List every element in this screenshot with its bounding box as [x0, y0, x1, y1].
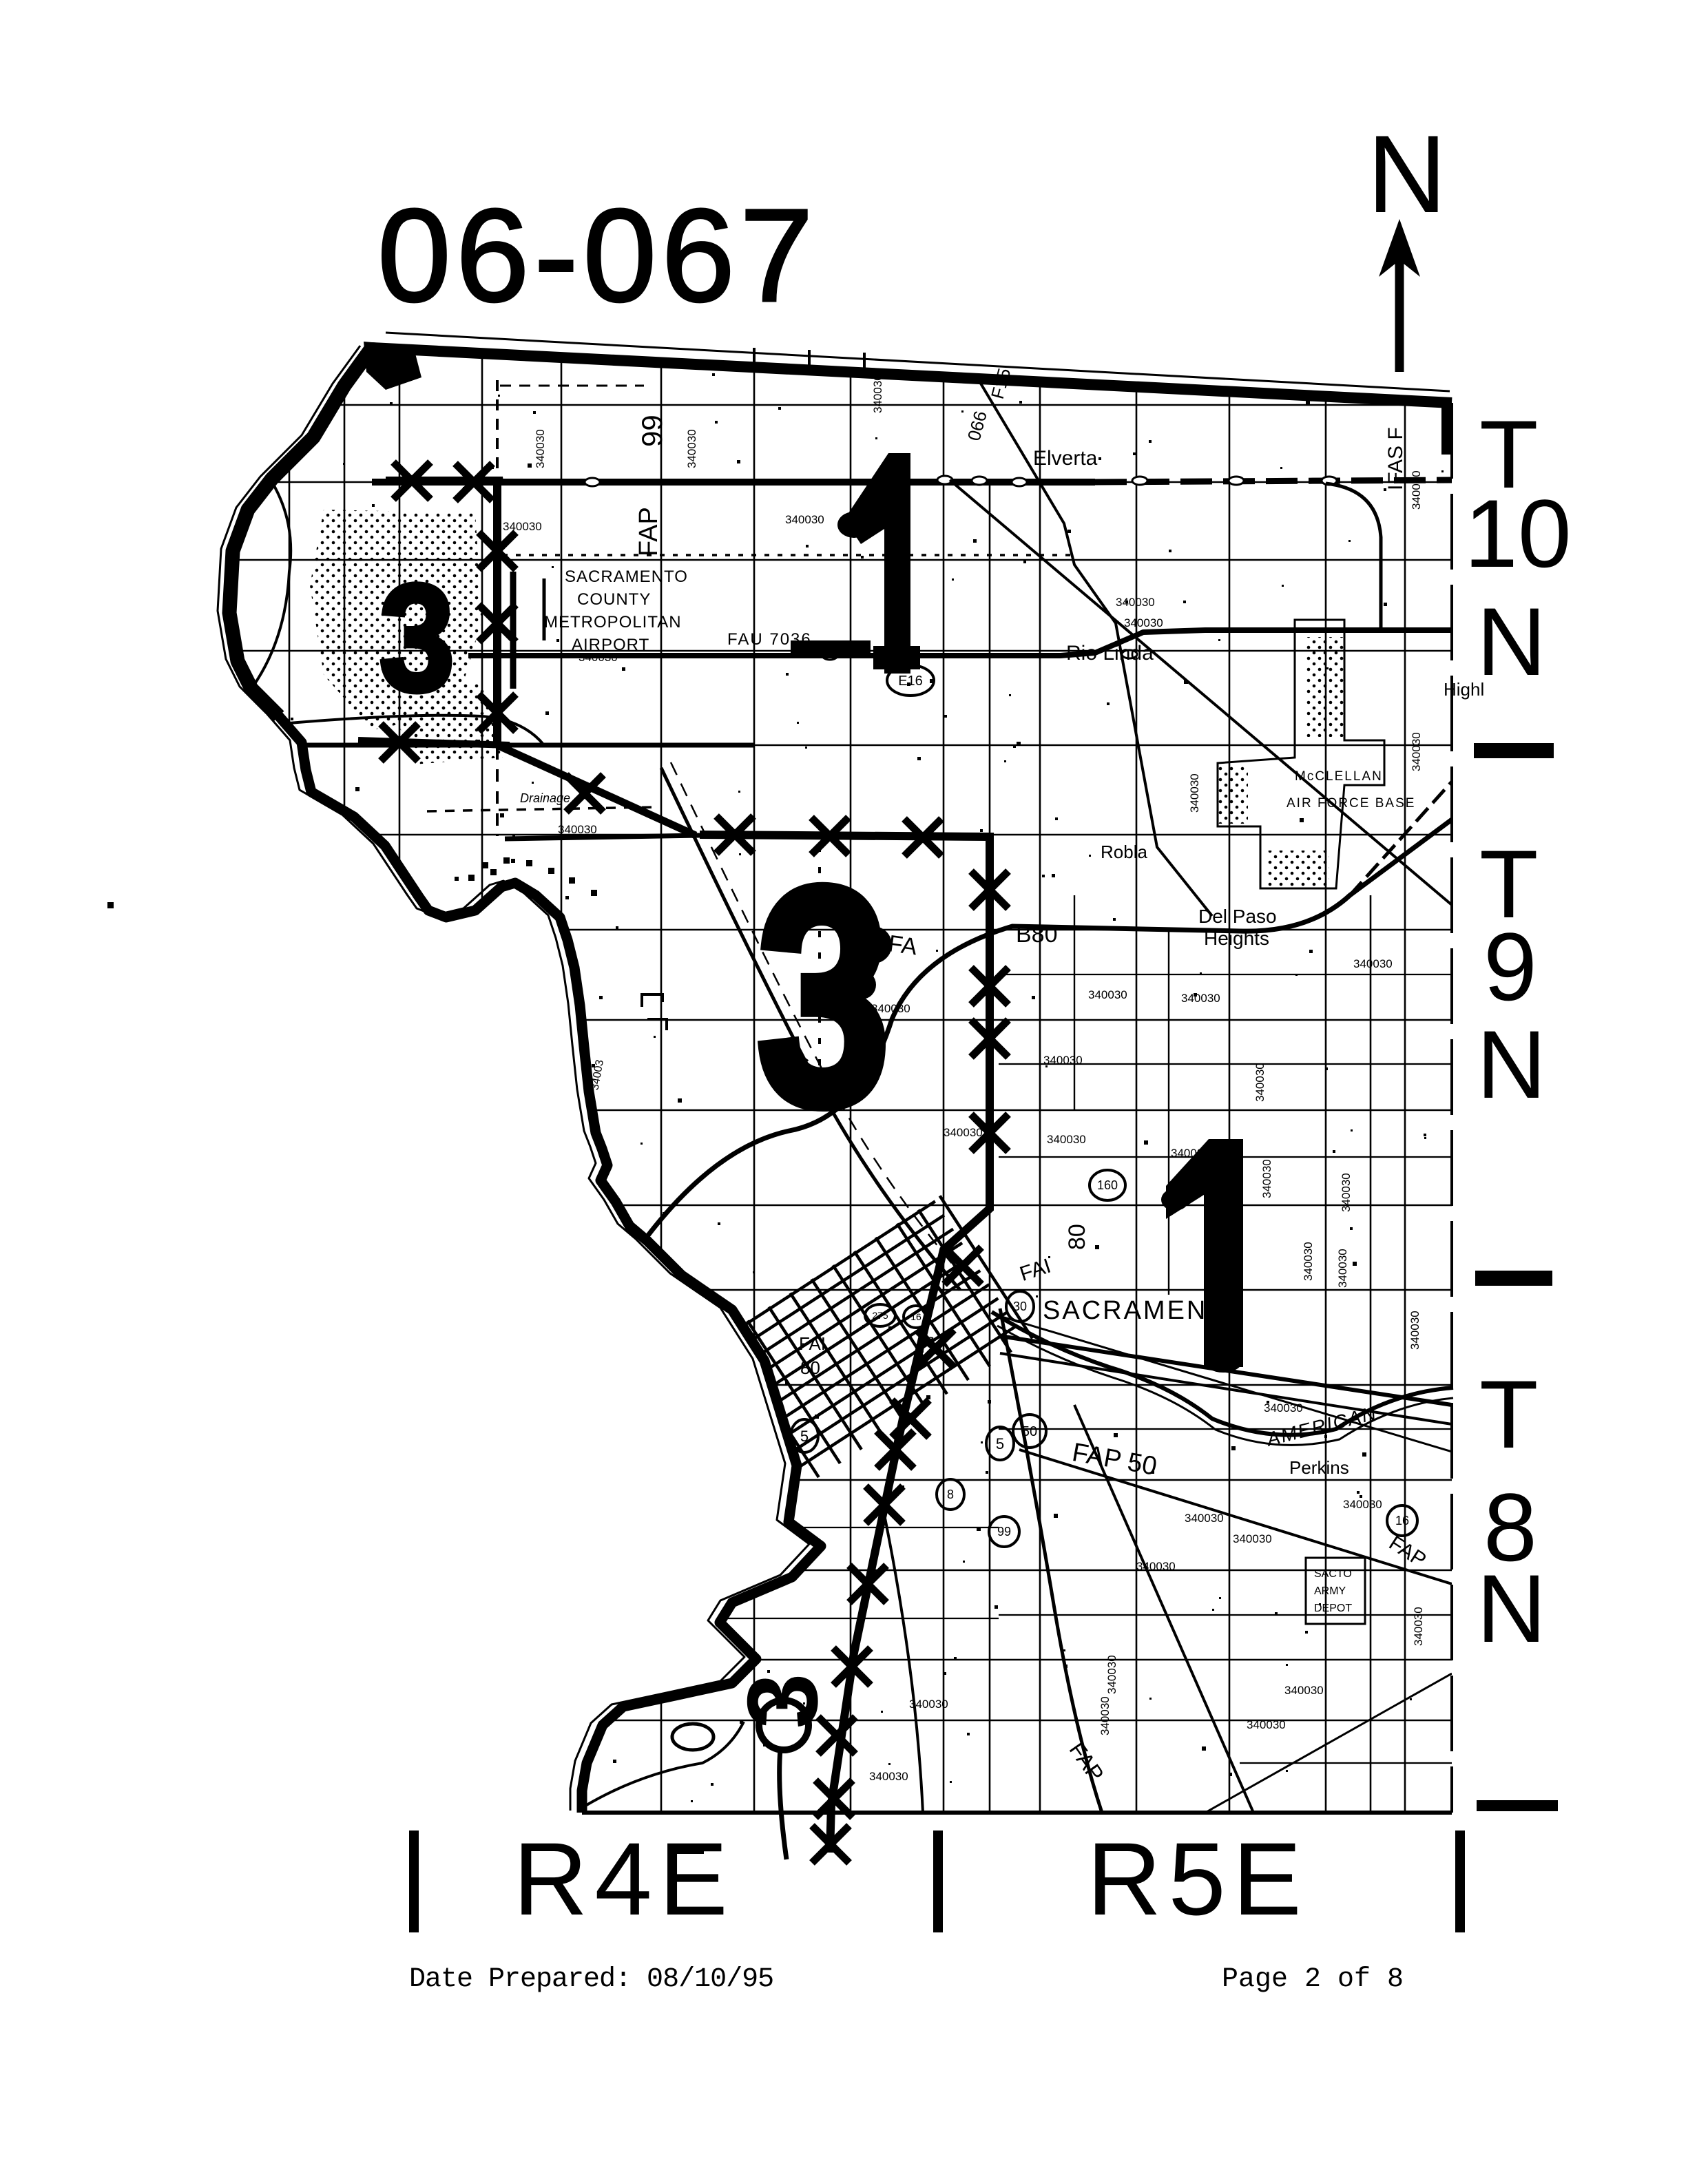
svg-text:Del Paso: Del Paso: [1198, 906, 1277, 927]
svg-text:340030: 340030: [1343, 1498, 1382, 1511]
svg-text:Page 2 of 8: Page 2 of 8: [1222, 1964, 1404, 1995]
svg-text:T: T: [1479, 1360, 1539, 1468]
svg-text:99: 99: [636, 415, 668, 447]
svg-text:B80: B80: [1016, 921, 1058, 948]
svg-text:E16: E16: [898, 674, 923, 689]
svg-text:340030: 340030: [558, 823, 597, 836]
svg-text:160: 160: [1097, 1178, 1118, 1192]
svg-text:5: 5: [800, 1428, 809, 1445]
svg-text:340030: 340030: [785, 513, 824, 526]
svg-text:340030: 340030: [685, 429, 698, 468]
svg-text:AIR FORCE BASE: AIR FORCE BASE: [1287, 796, 1415, 811]
svg-text:SACRAMENTO: SACRAMENTO: [565, 567, 688, 586]
svg-text:340030: 340030: [1181, 992, 1220, 1005]
svg-text:340030: 340030: [579, 651, 618, 664]
svg-text:FAP: FAP: [634, 507, 663, 556]
svg-text:340030: 340030: [1116, 596, 1155, 609]
svg-text:ARMY: ARMY: [1314, 1585, 1346, 1597]
svg-text:340030: 340030: [1408, 1311, 1421, 1350]
svg-text:Heights: Heights: [1204, 928, 1269, 949]
svg-text:340030: 340030: [1353, 957, 1393, 970]
svg-text:McCLELLAN: McCLELLAN: [1295, 769, 1383, 784]
svg-text:SACRAMENT: SACRAMENT: [1043, 1296, 1226, 1325]
svg-text:IFAS F: IFAS F: [1384, 427, 1407, 490]
svg-text:FAI: FAI: [799, 1333, 826, 1354]
svg-text:N: N: [1367, 112, 1447, 236]
svg-text:Robla: Robla: [1101, 842, 1147, 862]
svg-text:R4E: R4E: [513, 1821, 735, 1937]
svg-text:340030: 340030: [1098, 1696, 1112, 1735]
svg-text:340030: 340030: [1284, 1684, 1324, 1697]
svg-text:COUNTY: COUNTY: [577, 590, 651, 609]
svg-text:340030: 340030: [1410, 470, 1423, 510]
svg-text:Elverta: Elverta: [1033, 447, 1098, 470]
svg-text:340030: 340030: [1340, 1173, 1353, 1212]
svg-text:340030: 340030: [1233, 1532, 1272, 1545]
svg-text:R5E: R5E: [1087, 1821, 1309, 1937]
svg-text:Perkins: Perkins: [1289, 1457, 1349, 1478]
svg-text:340030: 340030: [1136, 1560, 1176, 1573]
svg-text:3: 3: [379, 553, 455, 722]
svg-text:N: N: [1477, 1010, 1546, 1118]
svg-text:8: 8: [947, 1488, 954, 1501]
svg-text:340030: 340030: [503, 520, 542, 533]
svg-text:N: N: [1477, 587, 1546, 696]
svg-text:METROPOLITAN: METROPOLITAN: [544, 613, 682, 632]
svg-text:340030: 340030: [944, 1126, 983, 1139]
svg-text:340030: 340030: [1264, 1401, 1303, 1415]
svg-text:5: 5: [996, 1435, 1004, 1452]
svg-text:16: 16: [1395, 1514, 1409, 1527]
svg-text:340030: 340030: [869, 1770, 908, 1783]
svg-text:340030: 340030: [1088, 988, 1127, 1001]
svg-text:Date Prepared: 08/10/95: Date Prepared: 08/10/95: [409, 1964, 773, 1995]
svg-text:N: N: [1477, 1554, 1546, 1662]
svg-text:FAU 7036: FAU 7036: [727, 630, 812, 649]
svg-text:340030: 340030: [1171, 1147, 1210, 1160]
svg-text:340030: 340030: [1043, 1054, 1083, 1067]
svg-text:340030: 340030: [1188, 773, 1201, 813]
svg-text:340030: 340030: [871, 1002, 910, 1015]
svg-text:340030: 340030: [1302, 1242, 1315, 1281]
svg-text:340030: 340030: [1105, 1655, 1118, 1694]
svg-text:9: 9: [1483, 912, 1537, 1021]
svg-text:340030: 340030: [1412, 1607, 1425, 1646]
svg-text:DEPOT: DEPOT: [1314, 1603, 1352, 1614]
svg-text:340030: 340030: [534, 429, 547, 468]
svg-text:Drainage: Drainage: [520, 791, 570, 805]
svg-text:340030: 340030: [1336, 1249, 1349, 1288]
svg-text:10: 10: [1464, 479, 1572, 587]
svg-text:80: 80: [1064, 1224, 1090, 1250]
svg-text:06-067: 06-067: [377, 181, 818, 329]
svg-text:340030: 340030: [1124, 616, 1163, 629]
svg-text:30: 30: [1013, 1300, 1027, 1313]
svg-text:275: 275: [872, 1310, 888, 1321]
svg-text:SACTO: SACTO: [1314, 1568, 1352, 1580]
svg-text:FA: FA: [887, 930, 919, 960]
svg-text:3: 3: [756, 823, 891, 1169]
svg-text:340030: 340030: [1253, 1063, 1267, 1102]
svg-text:16: 16: [910, 1311, 921, 1322]
svg-text:340030: 340030: [1260, 1159, 1273, 1198]
svg-text:340030: 340030: [871, 374, 884, 413]
svg-text:340030: 340030: [909, 1698, 948, 1711]
svg-text:99: 99: [997, 1525, 1011, 1539]
svg-text:50: 50: [1022, 1424, 1037, 1439]
svg-text:340030: 340030: [1410, 732, 1423, 771]
svg-text:80: 80: [800, 1357, 820, 1378]
svg-text:340030: 340030: [1247, 1718, 1286, 1731]
svg-text:340030: 340030: [1185, 1512, 1224, 1525]
svg-text:Rio Linda: Rio Linda: [1066, 642, 1154, 665]
svg-text:340030: 340030: [1047, 1133, 1086, 1146]
